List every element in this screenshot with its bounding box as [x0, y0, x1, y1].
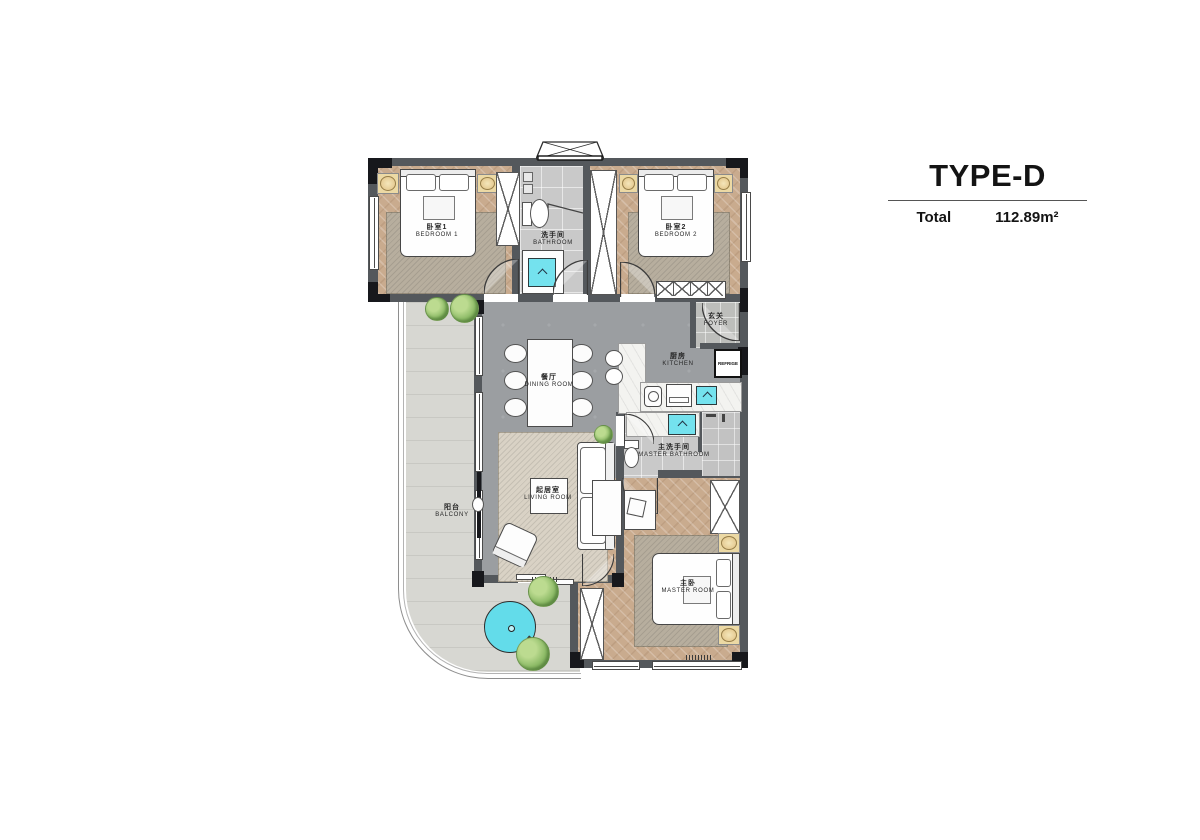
window-bedroom2-right: [741, 192, 751, 262]
wall-foyer-left: [690, 302, 696, 348]
master-closet: [592, 480, 622, 536]
dining-chair: [570, 344, 593, 363]
pillow: [716, 559, 731, 587]
master-wardrobe-left: [580, 588, 604, 660]
bedroom1-nightstand-right: [477, 174, 498, 193]
pillow: [677, 174, 707, 191]
window-master-bottom-1: [592, 661, 640, 670]
cabinet-cell: [691, 282, 708, 296]
burner: [648, 391, 659, 402]
dining-chair: [570, 371, 593, 390]
bedroom2-cabinet: [656, 281, 726, 299]
total-label: Total: [916, 209, 951, 226]
oven-door-line: [669, 397, 689, 403]
bar-stool-2: [605, 368, 623, 385]
pillow: [716, 591, 731, 619]
plant-living-corner: [594, 425, 613, 444]
master-headboard: [732, 553, 740, 625]
column-balcony-bottom: [472, 571, 484, 587]
masterbath-toilet: [622, 440, 640, 468]
plant-balcony-top-2: [450, 294, 479, 323]
dimension-mark-master: [686, 655, 712, 660]
dining-chair: [570, 398, 593, 417]
masterbath-door: [624, 414, 654, 444]
bathroom-shelf-a: [523, 172, 533, 182]
dining-chair: [504, 398, 527, 417]
folded-throw: [683, 576, 711, 604]
title-divider: [888, 200, 1087, 201]
bedroom2-bed: [638, 169, 714, 257]
master-desk-chair: [626, 497, 646, 517]
dining-chair: [504, 371, 527, 390]
bathroom-shelf-b: [523, 184, 533, 194]
bathroom-toilet: [522, 198, 548, 228]
column-top-left: [368, 158, 392, 168]
window-bedroom1-left: [369, 196, 379, 270]
dining-table: [527, 339, 573, 427]
column-right-foyer: [740, 288, 748, 312]
refrigerator: REFRIGE: [714, 349, 742, 378]
bedroom1-wardrobe: [496, 172, 520, 246]
shower-head-marks: [706, 414, 716, 417]
pillow: [644, 174, 674, 191]
pillow: [406, 174, 436, 191]
toilet-bowl: [530, 199, 549, 228]
column-bed1-corner: [368, 294, 390, 302]
dining-chair: [504, 344, 527, 363]
cabinet-cell: [708, 282, 723, 296]
bathroom-door: [553, 260, 588, 295]
bar-stool-1: [605, 350, 623, 367]
pillow: [439, 174, 469, 191]
doorway-bedroom1: [484, 294, 518, 302]
bedroom1-bed: [400, 169, 476, 257]
kitchen-sink: [696, 386, 717, 405]
plant-hottub-upper: [528, 576, 559, 607]
bedroom1-door: [484, 259, 519, 294]
master-bed: [652, 553, 740, 625]
shower-area: [702, 412, 740, 476]
bathroom-sink: [528, 258, 556, 287]
column-right-a: [740, 158, 748, 178]
window-balcony-2: [475, 392, 483, 472]
bay-window: [536, 140, 604, 162]
master-wardrobe-right: [710, 480, 740, 534]
plant-balcony-top-1: [425, 297, 449, 321]
page-canvas: { "title_block": { "type_name": "TYPE-D"…: [0, 0, 1200, 840]
plan-type-title: TYPE-D: [880, 158, 1095, 194]
bedroom1-nightstand-left: [377, 173, 399, 194]
bedroom2-nightstand-right: [714, 174, 733, 193]
cabinet-cell: [674, 282, 691, 296]
hot-tub-drain: [508, 625, 515, 632]
masterbath-sink: [668, 414, 696, 435]
refrigerator-label: REFRIGE: [718, 361, 738, 366]
master-balcony-door: [582, 554, 614, 586]
master-nightstand-top: [718, 533, 740, 553]
bedroom2-wardrobe: [590, 170, 617, 295]
bedroom2-door: [620, 262, 655, 297]
doorway-bathroom: [553, 294, 588, 302]
kitchen-oven: [666, 384, 692, 407]
window-balcony-1: [475, 316, 483, 376]
coffee-table: [530, 478, 568, 514]
cabinet-cell: [657, 282, 674, 296]
title-block: TYPE-D Total 112.89m²: [880, 158, 1095, 226]
total-area-value: 112.89m²: [995, 209, 1058, 226]
plant-hottub-lower: [516, 637, 550, 671]
entry-door: [702, 303, 740, 341]
window-master-bottom-2: [652, 661, 742, 670]
folded-throw: [661, 196, 693, 220]
master-nightstand-bottom: [718, 625, 740, 645]
shower-head-marks-2: [722, 414, 725, 422]
tv-bracket: [472, 497, 484, 512]
folded-throw: [423, 196, 455, 220]
toilet-bowl: [624, 447, 639, 468]
bedroom2-nightstand-left: [619, 174, 638, 193]
kitchen-stove: [644, 386, 662, 407]
